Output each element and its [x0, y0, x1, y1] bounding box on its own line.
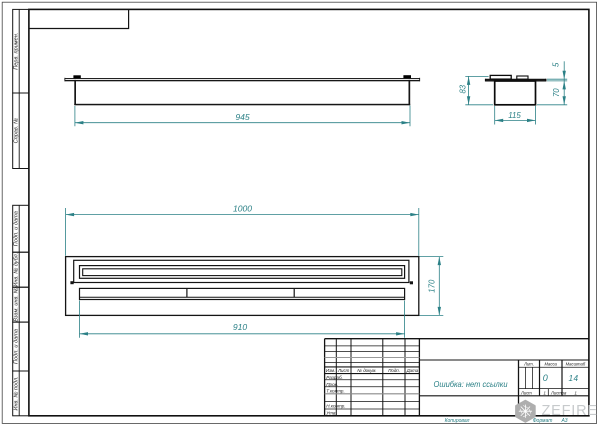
svg-text:Масса: Масса [545, 362, 558, 367]
svg-text:1000: 1000 [233, 204, 252, 214]
svg-text:Инв. № подл.: Инв. № подл. [13, 376, 19, 410]
svg-text:Пров.: Пров. [326, 382, 338, 387]
svg-text:14: 14 [568, 374, 578, 383]
svg-text:Разраб.: Разраб. [326, 375, 343, 380]
svg-text:Утв.: Утв. [326, 410, 336, 415]
svg-text:Подп. и дата: Подп. и дата [13, 329, 19, 364]
svg-text:Лист: Лист [520, 390, 532, 395]
svg-text:Ошибка: нет ссылки: Ошибка: нет ссылки [434, 380, 508, 389]
svg-text:Листов: Листов [550, 390, 567, 395]
svg-text:№ докум.: № докум. [357, 368, 376, 373]
svg-text:1: 1 [544, 390, 546, 395]
svg-text:70: 70 [552, 88, 561, 97]
svg-text:ZEFIRE: ZEFIRE [542, 403, 598, 419]
svg-text:Справ. №: Справ. № [13, 118, 19, 143]
svg-text:Перв. примен.: Перв. примен. [13, 33, 19, 70]
svg-text:Подп.: Подп. [388, 368, 400, 373]
svg-text:Дата: Дата [406, 368, 419, 373]
svg-text:Подп. и дата: Подп. и дата [13, 211, 19, 246]
svg-text:Лист: Лист [337, 368, 350, 373]
svg-text:Масштаб: Масштаб [566, 362, 586, 367]
svg-text:5: 5 [551, 62, 560, 67]
svg-text:1: 1 [575, 390, 577, 395]
svg-text:170: 170 [427, 279, 436, 293]
svg-text:Взам. инв. №: Взам. инв. № [13, 288, 19, 322]
svg-text:115: 115 [508, 111, 521, 120]
svg-text:Н.контр.: Н.контр. [326, 403, 345, 408]
svg-text:Лит.: Лит. [523, 362, 534, 367]
svg-text:Инв. № дубл.: Инв. № дубл. [13, 253, 19, 287]
svg-text:Т.контр.: Т.контр. [326, 388, 345, 393]
svg-text:945: 945 [235, 112, 250, 122]
svg-text:910: 910 [233, 322, 248, 332]
svg-text:0: 0 [543, 373, 548, 383]
svg-text:Изм.: Изм. [326, 368, 335, 373]
svg-text:Копировал: Копировал [445, 418, 470, 424]
svg-text:83: 83 [459, 84, 468, 93]
